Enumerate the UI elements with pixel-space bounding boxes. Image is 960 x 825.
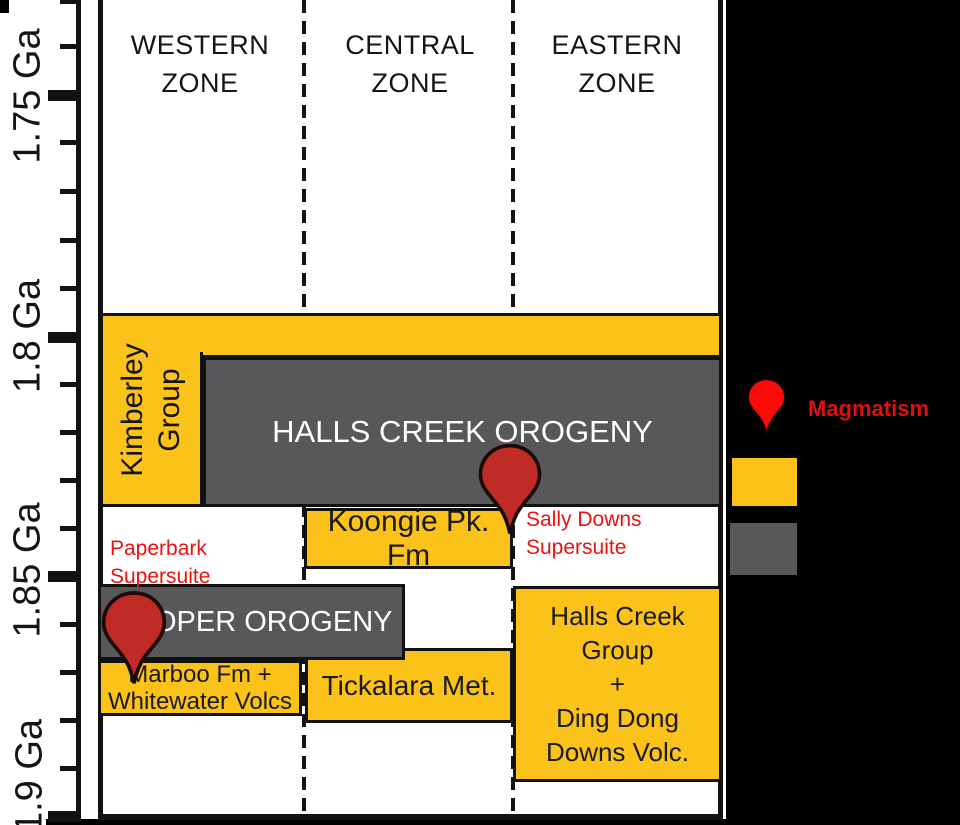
tickalara-met-label: Tickalara Met.: [322, 670, 497, 702]
axis-minor-tick: [60, 44, 79, 49]
yellow-seam-mask: [196, 316, 208, 352]
halls-creek-orogeny-box: HALLS CREEK OROGENY: [203, 357, 722, 507]
zone-header-eastern: EASTERN ZONE: [512, 26, 722, 102]
time-axis-spine: [76, 0, 81, 821]
magmatism-pin-icon: [97, 587, 171, 690]
stratigraphic-correlation-diagram: 1.75 Ga 1.8 Ga 1.85 Ga 1.9 Ga WESTERN ZO…: [0, 0, 960, 825]
legend-unit-swatch: [732, 458, 797, 506]
axis-minor-tick: [60, 766, 79, 771]
legend-magmatism-pin-icon: [744, 373, 789, 441]
axis-tick-label-1-9ga: 1.9 Ga: [9, 719, 52, 825]
halls-creek-group-label: Halls Creek Group + Ding Dong Downs Volc…: [546, 599, 689, 769]
halls-creek-group-box: Halls Creek Group + Ding Dong Downs Volc…: [513, 586, 722, 782]
axis-minor-tick: [60, 478, 79, 483]
axis-minor-tick: [60, 189, 79, 194]
top-left-corner-mark: [0, 0, 9, 13]
zone-header-central: CENTRAL ZONE: [305, 26, 515, 102]
zone-header-western: WESTERN ZONE: [95, 26, 305, 102]
axis-major-tick: [48, 90, 79, 101]
legend-orogeny-swatch: [730, 523, 797, 575]
legend-magmatism-label: Magmatism: [808, 396, 929, 422]
chart-bottom-border: [98, 814, 723, 820]
axis-tick-label-1-75ga: 1.75 Ga: [7, 28, 50, 163]
axis-minor-tick: [60, 382, 79, 387]
axis-major-tick: [48, 332, 79, 343]
halls-creek-orogeny-label: HALLS CREEK OROGENY: [272, 414, 653, 450]
axis-minor-tick: [60, 718, 79, 723]
axis-minor-tick: [60, 670, 79, 675]
axis-tick-label-1-8ga: 1.8 Ga: [7, 279, 50, 393]
paperbark-supersuite-note: Paperbark Supersuite: [110, 535, 210, 591]
axis-tick-label-1-85ga: 1.85 Ga: [7, 502, 50, 637]
axis-minor-tick: [60, 238, 79, 243]
axis-minor-tick: [60, 0, 79, 4]
axis-minor-tick: [60, 430, 79, 435]
axis-major-tick: [48, 571, 79, 582]
axis-minor-tick: [60, 526, 79, 531]
axis-major-tick: [48, 811, 79, 822]
axis-minor-tick: [60, 622, 79, 627]
magmatism-pin-icon: [474, 440, 546, 540]
axis-minor-tick: [60, 286, 79, 291]
axis-minor-tick: [60, 140, 79, 145]
kimberley-group-label: Kimberley Group: [114, 343, 188, 476]
